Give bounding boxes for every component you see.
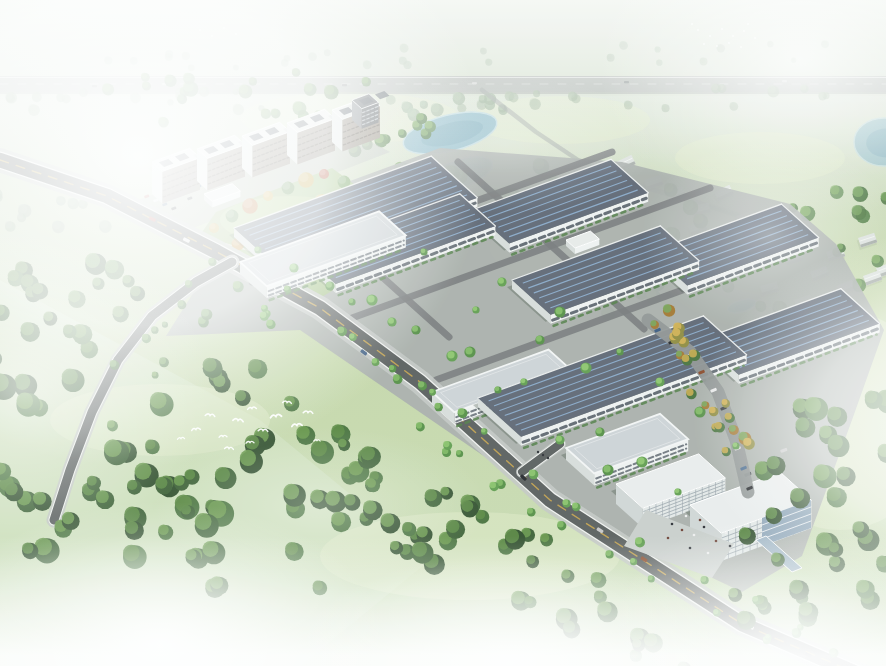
bird [303,411,313,414]
person [715,540,718,543]
distant-bird [743,30,745,32]
person [689,547,692,550]
distant-bird [697,29,699,31]
aerial-rendering-industrial-park [0,0,886,666]
distant-bird [703,43,705,45]
distant-bird [223,27,225,29]
distant-bird [754,37,756,39]
distant-bird [728,42,730,44]
person [729,545,732,548]
person [685,515,688,518]
distant-bird [721,28,723,30]
distant-bird [691,23,693,25]
rendering-scene [0,0,886,666]
distant-bird [211,35,213,37]
highway [0,76,886,93]
person [703,526,706,529]
distant-bird [199,29,201,31]
distant-bird [740,46,742,48]
bird [270,414,281,418]
distant-bird [709,35,711,37]
bird [292,423,303,426]
distant-bird [732,35,734,37]
person [707,552,710,555]
person [725,532,728,535]
person [693,534,696,537]
person [671,523,674,526]
person [699,519,702,522]
village-house [856,233,878,250]
distant-bird [716,45,718,47]
person [681,529,684,532]
person [667,537,670,540]
distant-bird [747,23,749,25]
distant-bird [235,33,237,35]
